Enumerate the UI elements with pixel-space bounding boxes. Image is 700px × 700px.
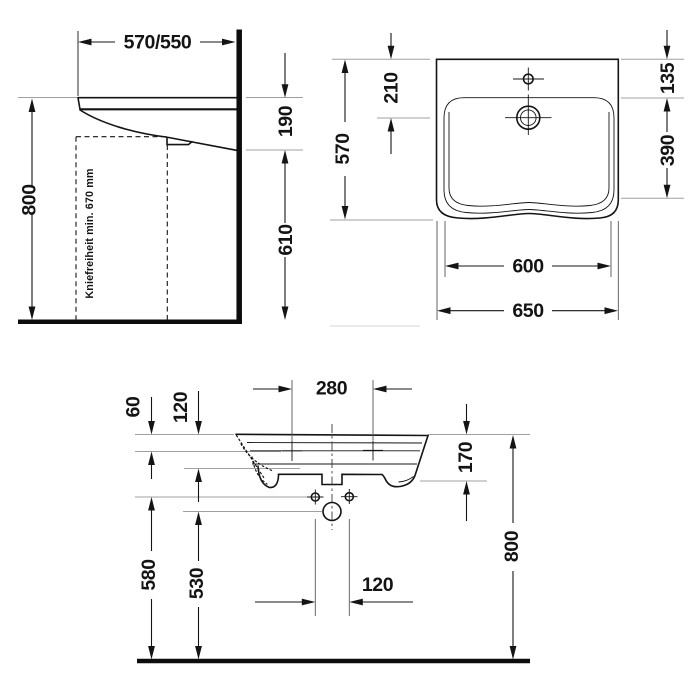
svg-text:600: 600 <box>512 256 544 278</box>
svg-text:170: 170 <box>455 441 477 473</box>
drain-hole <box>505 101 552 136</box>
dim-top-rim-band: 135 <box>657 30 679 94</box>
dim-top-depth: 570 <box>332 60 354 220</box>
left-dotted-curve <box>241 444 273 471</box>
bowl-inner-contour <box>449 112 609 206</box>
svg-text:390: 390 <box>657 134 679 166</box>
svg-text:135: 135 <box>657 62 679 94</box>
svg-text:650: 650 <box>512 300 544 322</box>
technical-drawing: Kniefreiheit min. 670 mm 570/550 800 190 <box>0 0 700 700</box>
dim-front-drain-height: 530 <box>186 512 208 660</box>
svg-text:120: 120 <box>362 574 394 596</box>
fixing-hole-left <box>307 490 324 505</box>
svg-text:800: 800 <box>19 184 41 216</box>
basin-side-profile <box>78 98 237 151</box>
left-foot <box>258 466 279 488</box>
tap-hole-cross-left <box>282 441 302 461</box>
svg-text:530: 530 <box>186 567 208 599</box>
svg-text:610: 610 <box>275 224 297 256</box>
tap-hole-cross-right <box>363 441 383 461</box>
left-dotted-edge <box>237 436 265 479</box>
bowl-rim-outline <box>444 98 614 213</box>
dim-side-height: 800 <box>19 99 41 321</box>
dim-top-bowl-width: 600 <box>445 221 611 278</box>
dim-top-bowl-depth: 390 <box>657 98 679 198</box>
left-foot-dotted-arc <box>252 457 267 484</box>
dim-top-drain-offset: 210 <box>381 33 403 154</box>
fixing-hole-right <box>341 489 358 504</box>
svg-text:210: 210 <box>381 72 403 104</box>
knee-clearance-label: Kniefreiheit min. 670 mm <box>84 168 96 298</box>
dim-side-width: 570/550 <box>78 31 236 96</box>
dim-front-fixing-height: 580 <box>138 497 160 660</box>
dim-side-rim-depth: 190 <box>275 53 297 137</box>
svg-text:570/550: 570/550 <box>124 32 192 54</box>
bottom-edge <box>279 474 383 484</box>
tap-hole <box>513 68 544 101</box>
dim-front-rim-height: 800 <box>501 435 523 660</box>
side-view: Kniefreiheit min. 670 mm 570/550 800 190 <box>18 30 303 324</box>
svg-text:190: 190 <box>275 105 297 137</box>
dim-front-fixing-spacing: 120 <box>255 519 413 616</box>
dim-front-tap-spacing: 280 <box>253 378 412 442</box>
svg-text:800: 800 <box>501 530 523 562</box>
dim-front-inner-edge-offset: 120 <box>170 391 202 502</box>
dim-front-apron-height: 170 <box>455 404 477 521</box>
svg-text:280: 280 <box>316 378 348 400</box>
svg-text:570: 570 <box>332 133 354 165</box>
front-view: 280 60 120 170 <box>123 378 531 662</box>
svg-text:60: 60 <box>123 396 145 417</box>
svg-text:120: 120 <box>170 391 192 423</box>
dim-side-clearance: 610 <box>275 150 297 320</box>
svg-text:580: 580 <box>138 559 160 591</box>
top-view: 570 210 135 390 <box>330 30 684 326</box>
dim-front-tap-offset: 60 <box>123 396 155 479</box>
